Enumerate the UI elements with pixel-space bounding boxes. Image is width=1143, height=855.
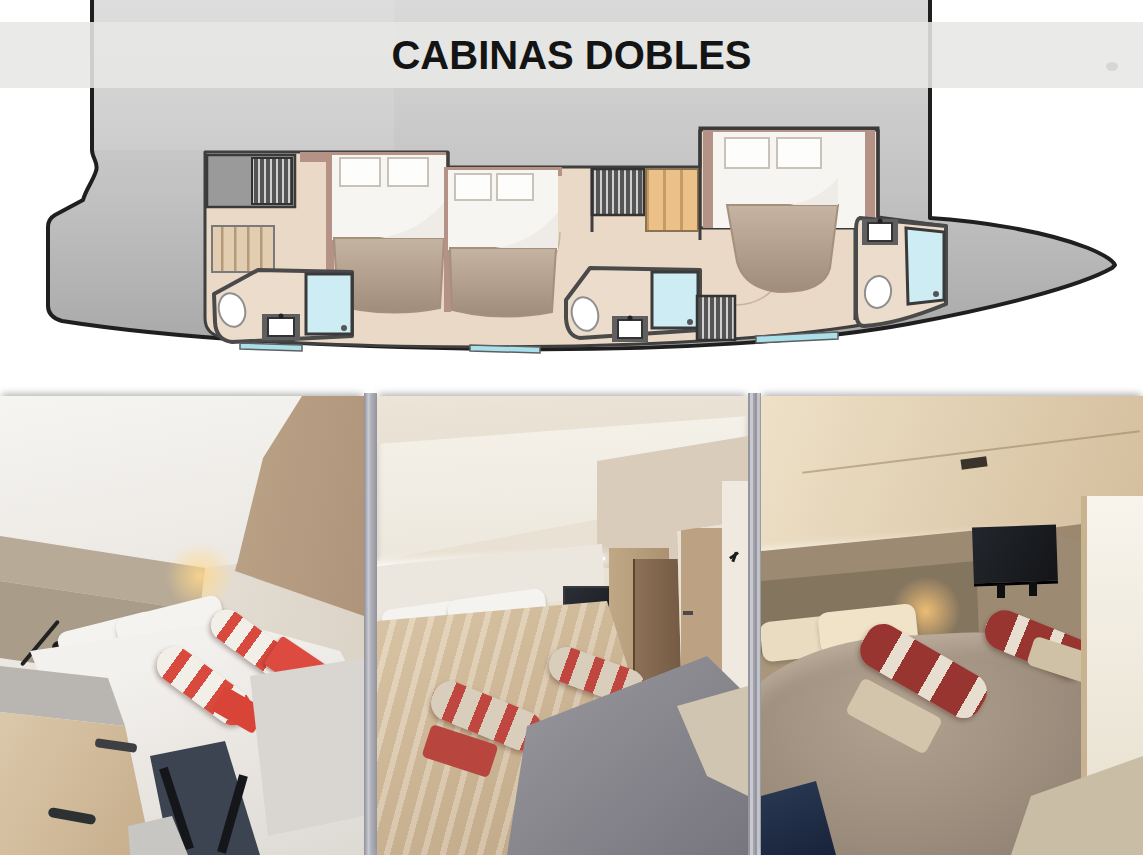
artifact-mark xyxy=(1106,62,1118,71)
brochure-page: CABINAS DOBLES xyxy=(0,0,1143,855)
cabin-fwd-bathroom xyxy=(856,218,946,326)
door-handle xyxy=(683,611,693,615)
cabin-aft-bathroom xyxy=(214,270,352,342)
cabin-mid-hanging-locker xyxy=(592,169,644,215)
tv-bracket xyxy=(1029,582,1037,596)
photo-divider xyxy=(748,393,761,855)
tv-bracket xyxy=(997,584,1005,598)
companionway-steps xyxy=(646,169,698,231)
hull-window-aft xyxy=(240,343,302,351)
cabin-photo-2 xyxy=(377,396,748,855)
cabin-aft-steps xyxy=(212,226,274,272)
cabin-aft-hanging-locker xyxy=(252,158,292,204)
tv-screen xyxy=(972,525,1058,587)
cabin-fwd-hanging-locker xyxy=(697,296,735,340)
cabin-mid-bed xyxy=(444,167,562,317)
page-title: CABINAS DOBLES xyxy=(0,22,1143,88)
cabin-photo-1 xyxy=(0,396,364,855)
title-band: CABINAS DOBLES xyxy=(0,22,1143,88)
cabin-aft-shower xyxy=(306,274,352,334)
cabin-photo-3 xyxy=(761,396,1143,855)
cabin-mid-bathroom xyxy=(566,268,700,342)
photo-divider xyxy=(364,393,377,855)
hull-window-mid xyxy=(470,345,540,353)
